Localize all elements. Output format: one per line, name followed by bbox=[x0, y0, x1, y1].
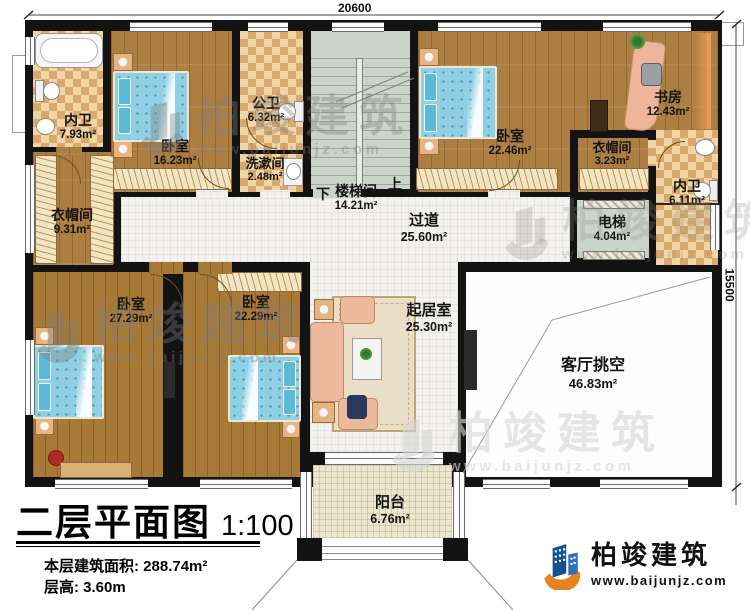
armchair bbox=[340, 296, 375, 324]
window bbox=[25, 37, 35, 65]
room-label-living: 起居室25.30m² bbox=[388, 302, 470, 334]
nightstand bbox=[419, 137, 439, 155]
nightstand bbox=[35, 327, 54, 345]
room-label-bedroom-bottom-left: 卧室27.29m² bbox=[96, 296, 166, 326]
room-label-bedroom-bottom-mid: 卧室22.29m² bbox=[221, 294, 291, 324]
plan-scale: 1:100 bbox=[221, 510, 294, 543]
room-label-balcony: 阳台6.76m² bbox=[350, 494, 430, 526]
door-gap bbox=[149, 262, 183, 274]
nightstand bbox=[113, 53, 133, 71]
window bbox=[130, 22, 212, 32]
company-name: 柏竣建筑 bbox=[591, 542, 727, 569]
wardrobe bbox=[416, 168, 558, 190]
window bbox=[438, 22, 541, 32]
window bbox=[248, 22, 288, 32]
window bbox=[25, 165, 35, 253]
tv bbox=[164, 362, 175, 398]
company-logo-icon bbox=[538, 540, 584, 590]
room-label-bath-top-left: 内卫7.93m² bbox=[43, 112, 113, 142]
wall-cloak-right-top bbox=[570, 130, 656, 138]
window bbox=[332, 22, 384, 32]
window bbox=[55, 479, 148, 489]
nightstand bbox=[35, 417, 54, 435]
sofa bbox=[310, 322, 344, 402]
table-flowers bbox=[360, 348, 372, 360]
toilet bbox=[43, 82, 60, 100]
window bbox=[600, 479, 688, 489]
balcony-post-right bbox=[443, 538, 468, 561]
nightstand bbox=[113, 140, 133, 158]
company-website: www.baijunjz.com bbox=[591, 573, 727, 588]
floor-area-text: 本层建筑面积: 288.74m² bbox=[44, 555, 207, 576]
room-label-washroom: 洗漱间2.48m² bbox=[230, 156, 300, 184]
wardrobe bbox=[217, 272, 302, 292]
dimension-right: 15500 bbox=[723, 268, 737, 301]
room-label-cloak-left: 衣帽间9.31m² bbox=[37, 207, 107, 237]
window bbox=[200, 479, 292, 489]
wardrobe bbox=[579, 168, 649, 190]
tv bbox=[464, 330, 477, 390]
window bbox=[483, 479, 550, 489]
side-table bbox=[312, 402, 335, 423]
nightstand bbox=[282, 336, 300, 354]
floor-plan-page: 内卫7.93m² 卧室16.23m² 公卫6.32m² 洗漱间2.48m² 楼梯… bbox=[0, 0, 750, 610]
balcony-side-left bbox=[300, 472, 312, 538]
title-underline bbox=[16, 541, 260, 544]
bed bbox=[33, 345, 104, 419]
door-gap bbox=[56, 147, 82, 155]
elevator-door-bottom bbox=[583, 251, 645, 260]
balcony-post-left bbox=[297, 538, 322, 561]
balcony-sliding-door bbox=[325, 452, 443, 465]
room-label-bath-right: 内卫6.11m² bbox=[652, 178, 722, 208]
stair-landing bbox=[311, 31, 410, 55]
title-underline-2 bbox=[16, 546, 260, 547]
room-label-public-bath: 公卫6.32m² bbox=[231, 95, 301, 125]
floor-height-text: 层高: 3.60m bbox=[44, 576, 126, 597]
room-label-elevator: 电梯4.04m² bbox=[577, 214, 647, 244]
sink bbox=[695, 139, 715, 156]
dimension-top: 20600 bbox=[338, 1, 371, 15]
stair-down-label: 下 bbox=[316, 184, 330, 204]
company-logo: 柏竣建筑 www.baijunjz.com bbox=[538, 540, 727, 590]
door-gap bbox=[260, 190, 290, 199]
room-label-stairwell: 楼梯间14.21m² bbox=[325, 183, 387, 213]
room-label-bedroom-top-left: 卧室16.23m² bbox=[140, 138, 210, 168]
door-gap bbox=[196, 190, 228, 199]
office-chair bbox=[641, 63, 662, 86]
room-label-corridor: 过道25.60m² bbox=[384, 212, 464, 244]
door-gap bbox=[648, 140, 656, 166]
room-label-cloak-right: 衣帽间3.23m² bbox=[577, 140, 647, 168]
bed bbox=[228, 355, 301, 422]
side-table bbox=[314, 299, 334, 320]
window bbox=[603, 22, 691, 32]
door-gap bbox=[198, 262, 232, 274]
room-label-void: 客厅挑空46.83m² bbox=[547, 357, 639, 391]
window bbox=[25, 340, 35, 415]
balcony-side-right bbox=[453, 472, 465, 538]
throw-blanket bbox=[347, 395, 367, 419]
door-gap bbox=[488, 190, 520, 199]
nightstand bbox=[282, 420, 300, 438]
nightstand bbox=[419, 48, 439, 66]
room-label-study: 书房12.43m² bbox=[633, 89, 703, 119]
stair-up-label: 上 bbox=[388, 174, 402, 194]
page-title: 二层平面图 bbox=[16, 492, 211, 546]
window bbox=[710, 205, 720, 250]
dresser bbox=[60, 462, 132, 478]
stair-rail bbox=[356, 58, 363, 187]
cabinet bbox=[590, 100, 608, 132]
elevator-door-top bbox=[583, 200, 645, 209]
plant bbox=[630, 34, 645, 49]
bed bbox=[113, 71, 189, 142]
room-label-bedroom-top-right: 卧室22.46m² bbox=[475, 128, 545, 158]
plan-title-row: 二层平面图 1:100 bbox=[16, 492, 294, 546]
balcony-railing bbox=[322, 546, 443, 560]
bathtub bbox=[35, 33, 103, 68]
